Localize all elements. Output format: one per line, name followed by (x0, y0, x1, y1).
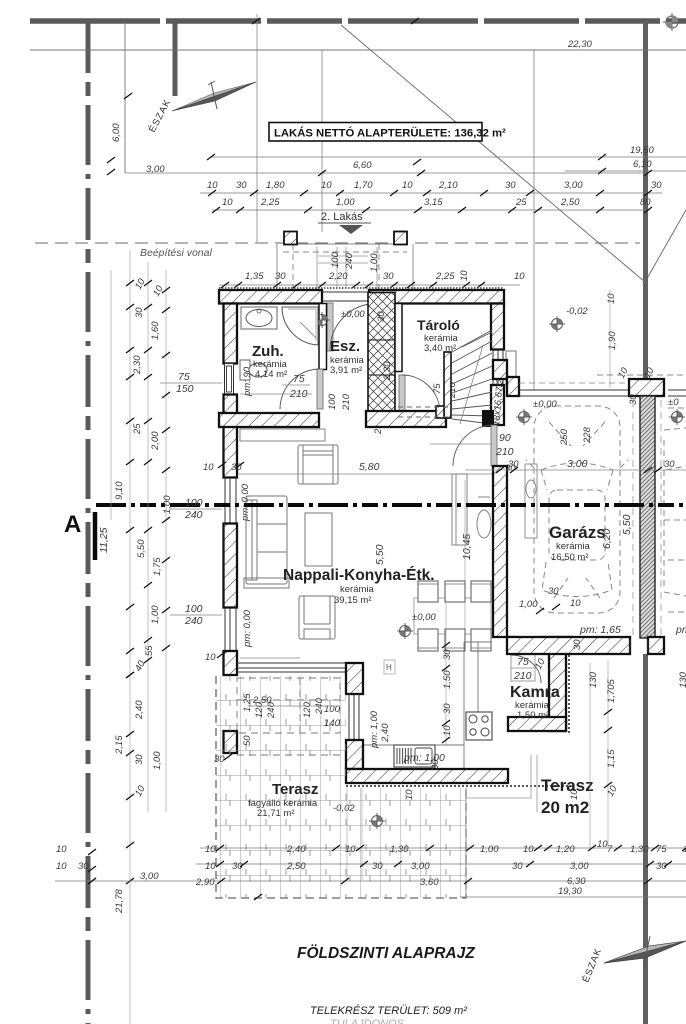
svg-text:30: 30 (664, 459, 675, 470)
svg-text:50: 50 (242, 735, 253, 746)
svg-text:1,25: 1,25 (242, 693, 253, 712)
svg-text:H: H (386, 663, 392, 672)
svg-text:10: 10 (514, 271, 525, 282)
svg-text:±0,00: ±0,00 (412, 612, 436, 623)
svg-text:30: 30 (372, 861, 383, 872)
svg-text:5,50: 5,50 (621, 514, 633, 535)
svg-text:TULAJDONOS: TULAJDONOS (330, 1018, 405, 1024)
svg-text:2,50: 2,50 (286, 861, 306, 872)
svg-text:pm: pm (675, 624, 686, 636)
svg-text:30: 30 (78, 861, 89, 872)
svg-text:1,30: 1,30 (390, 844, 409, 855)
svg-text:2,10: 2,10 (438, 180, 458, 191)
svg-text:2,15: 2,15 (114, 735, 125, 755)
svg-text:30: 30 (383, 271, 394, 282)
svg-text:±0,00: ±0,00 (341, 309, 365, 320)
svg-text:10: 10 (222, 197, 233, 208)
svg-text:2,20: 2,20 (328, 271, 348, 282)
svg-text:10: 10 (459, 270, 470, 281)
svg-text:120: 120 (302, 701, 313, 718)
svg-text:228: 228 (582, 426, 593, 444)
svg-text:2,25: 2,25 (435, 271, 455, 282)
svg-text:1,60: 1,60 (150, 321, 161, 340)
svg-text:10: 10 (205, 844, 216, 855)
svg-text:10: 10 (345, 844, 356, 855)
svg-text:11,25: 11,25 (98, 527, 110, 553)
svg-text:1,00: 1,00 (152, 751, 163, 770)
svg-text:75: 75 (432, 383, 443, 394)
svg-text:Zuh.: Zuh. (252, 343, 284, 360)
svg-text:25: 25 (132, 423, 143, 435)
svg-text:10: 10 (570, 598, 581, 609)
svg-text:1,00: 1,00 (369, 253, 380, 272)
svg-text:2,30: 2,30 (382, 361, 393, 381)
svg-text:10: 10 (402, 180, 413, 191)
svg-text:55: 55 (144, 645, 155, 656)
svg-text:Terasz: Terasz (541, 776, 594, 795)
svg-text:30: 30 (214, 754, 225, 765)
svg-text:FÖLDSZINTI ALAPRAJZ: FÖLDSZINTI ALAPRAJZ (297, 945, 475, 962)
svg-text:pm: 0,00: pm: 0,00 (242, 609, 253, 648)
svg-text:240: 240 (184, 509, 203, 521)
svg-text:Kamra: Kamra (510, 684, 560, 701)
svg-text:1,80: 1,80 (266, 180, 285, 191)
svg-text:30: 30 (651, 180, 662, 191)
svg-text:30: 30 (430, 759, 441, 770)
svg-text:30: 30 (134, 754, 145, 765)
svg-text:5,50: 5,50 (374, 544, 386, 565)
svg-text:30: 30 (376, 311, 387, 322)
svg-text:3,91 m²: 3,91 m² (330, 365, 362, 376)
svg-text:10: 10 (523, 844, 534, 855)
svg-text:10: 10 (203, 462, 214, 473)
svg-text:240: 240 (344, 252, 355, 270)
svg-text:10: 10 (321, 180, 332, 191)
svg-text:±0: ±0 (668, 397, 679, 408)
svg-text:5,50: 5,50 (136, 539, 147, 558)
svg-text:21,71 m²: 21,71 m² (257, 808, 295, 819)
svg-text:kerámia: kerámia (340, 584, 375, 595)
svg-text:2,50: 2,50 (560, 197, 580, 208)
svg-text:1,705: 1,705 (606, 679, 617, 703)
svg-text:Terasz: Terasz (272, 781, 318, 798)
svg-text:kerámia: kerámia (556, 541, 591, 552)
svg-text:30: 30 (505, 180, 516, 191)
svg-text:3,40 m²: 3,40 m² (424, 343, 456, 354)
svg-text:2,40: 2,40 (286, 844, 306, 855)
svg-text:10: 10 (56, 844, 67, 855)
svg-text:100: 100 (327, 393, 338, 410)
svg-text:210: 210 (495, 446, 514, 458)
svg-text:10: 10 (207, 180, 218, 191)
svg-text:1,30: 1,30 (630, 844, 649, 855)
svg-text:21,78: 21,78 (114, 889, 125, 914)
svg-text:30: 30 (134, 307, 145, 318)
svg-text:1,00: 1,00 (150, 605, 161, 624)
svg-text:2,50: 2,50 (252, 695, 272, 706)
svg-text:80: 80 (640, 197, 651, 208)
svg-text:150: 150 (176, 383, 194, 395)
svg-text:210: 210 (513, 670, 532, 682)
svg-text:9,10: 9,10 (114, 481, 125, 500)
svg-text:10: 10 (606, 293, 617, 304)
svg-text:30: 30 (512, 861, 523, 872)
svg-text:2,30: 2,30 (132, 355, 143, 375)
svg-text:75: 75 (178, 371, 190, 383)
svg-text:30: 30 (572, 639, 583, 650)
svg-text:3,00: 3,00 (146, 164, 165, 175)
svg-text:1,50: 1,50 (442, 670, 453, 689)
svg-text:3,15: 3,15 (424, 197, 443, 208)
svg-text:±0,00: ±0,00 (533, 399, 557, 410)
svg-text:2,00: 2,00 (150, 431, 161, 451)
svg-text:7: 7 (607, 844, 613, 855)
svg-text:Beépítési vonal: Beépítési vonal (140, 247, 212, 259)
svg-text:100: 100 (185, 497, 203, 509)
svg-text:250: 250 (559, 428, 570, 446)
svg-text:130: 130 (678, 671, 686, 688)
svg-text:Garázs: Garázs (549, 523, 606, 542)
svg-text:3,00: 3,00 (411, 861, 430, 872)
svg-text:30: 30 (442, 649, 453, 660)
svg-text:30: 30 (548, 586, 559, 597)
svg-text:25: 25 (515, 197, 527, 208)
svg-text:TELEKRÉSZ TERÜLET: 509 m²: TELEKRÉSZ TERÜLET: 509 m² (310, 1004, 467, 1017)
svg-text:3,00: 3,00 (564, 180, 583, 191)
svg-text:A: A (64, 511, 81, 538)
svg-text:3,00: 3,00 (567, 458, 588, 470)
svg-text:1,00: 1,00 (336, 197, 355, 208)
svg-text:1,50 m²: 1,50 m² (517, 710, 549, 721)
svg-text:6,10: 6,10 (633, 159, 652, 170)
svg-text:6,00: 6,00 (111, 123, 122, 142)
svg-text:5,80: 5,80 (359, 461, 380, 473)
svg-text:240: 240 (184, 615, 203, 627)
svg-text:19,30: 19,30 (558, 886, 582, 897)
svg-text:1,00: 1,00 (480, 844, 499, 855)
svg-text:20 m2: 20 m2 (541, 798, 589, 817)
svg-text:-0,02: -0,02 (566, 306, 588, 317)
svg-text:100: 100 (330, 251, 341, 268)
svg-text:1,70: 1,70 (354, 180, 373, 191)
svg-text:1,35: 1,35 (245, 271, 264, 282)
svg-text:6,60: 6,60 (353, 160, 372, 171)
svg-text:1,15: 1,15 (606, 749, 617, 768)
svg-text:LAKÁS NETTÓ ALAPTERÜLETE: 136,: LAKÁS NETTÓ ALAPTERÜLETE: 136,32 m² (274, 127, 506, 140)
svg-text:1,00: 1,00 (519, 599, 538, 610)
svg-text:130: 130 (588, 671, 599, 688)
svg-text:2,40: 2,40 (134, 700, 145, 720)
svg-text:22,30: 22,30 (567, 39, 592, 50)
svg-text:4,14 m²: 4,14 m² (255, 369, 287, 380)
svg-text:30: 30 (275, 271, 286, 282)
svg-text:Esz.: Esz. (330, 338, 360, 355)
svg-text:10: 10 (56, 861, 67, 872)
svg-text:2,25: 2,25 (260, 197, 280, 208)
svg-text:90: 90 (499, 432, 511, 444)
svg-text:1,20: 1,20 (556, 844, 575, 855)
svg-text:2,40: 2,40 (380, 723, 391, 743)
svg-text:30: 30 (508, 459, 519, 470)
svg-text:75: 75 (517, 656, 529, 668)
svg-text:pm: 1,65: pm: 1,65 (579, 624, 621, 636)
svg-text:30: 30 (442, 703, 453, 714)
svg-text:pm: 1,00: pm: 1,00 (369, 710, 380, 749)
svg-text:10: 10 (205, 652, 216, 663)
svg-text:2,90: 2,90 (195, 877, 215, 888)
svg-text:1,00: 1,00 (162, 495, 173, 514)
svg-text:Nappali-Konyha-Étk.: Nappali-Konyha-Étk. (283, 567, 435, 584)
svg-text:19,50: 19,50 (630, 145, 654, 156)
svg-text:3,00: 3,00 (140, 871, 159, 882)
svg-text:30: 30 (628, 394, 639, 405)
svg-text:10: 10 (205, 861, 216, 872)
svg-text:3,00: 3,00 (570, 861, 589, 872)
svg-text:-0,02: -0,02 (333, 803, 355, 814)
svg-text:30: 30 (236, 180, 247, 191)
svg-text:10: 10 (442, 725, 453, 736)
svg-text:140: 140 (324, 718, 341, 729)
svg-text:1,90: 1,90 (607, 331, 618, 350)
svg-text:100: 100 (185, 603, 203, 615)
svg-text:39,15 m²: 39,15 m² (334, 595, 372, 606)
svg-text:Tároló: Tároló (417, 317, 460, 333)
svg-text:3,60: 3,60 (420, 877, 439, 888)
svg-text:16,50 m²: 16,50 m² (551, 552, 589, 563)
svg-text:210: 210 (341, 393, 352, 411)
svg-text:2. Lakás: 2. Lakás (321, 211, 363, 223)
svg-text:1,75: 1,75 (152, 557, 163, 576)
svg-text:6,20: 6,20 (601, 528, 613, 549)
svg-text:75: 75 (293, 373, 305, 385)
